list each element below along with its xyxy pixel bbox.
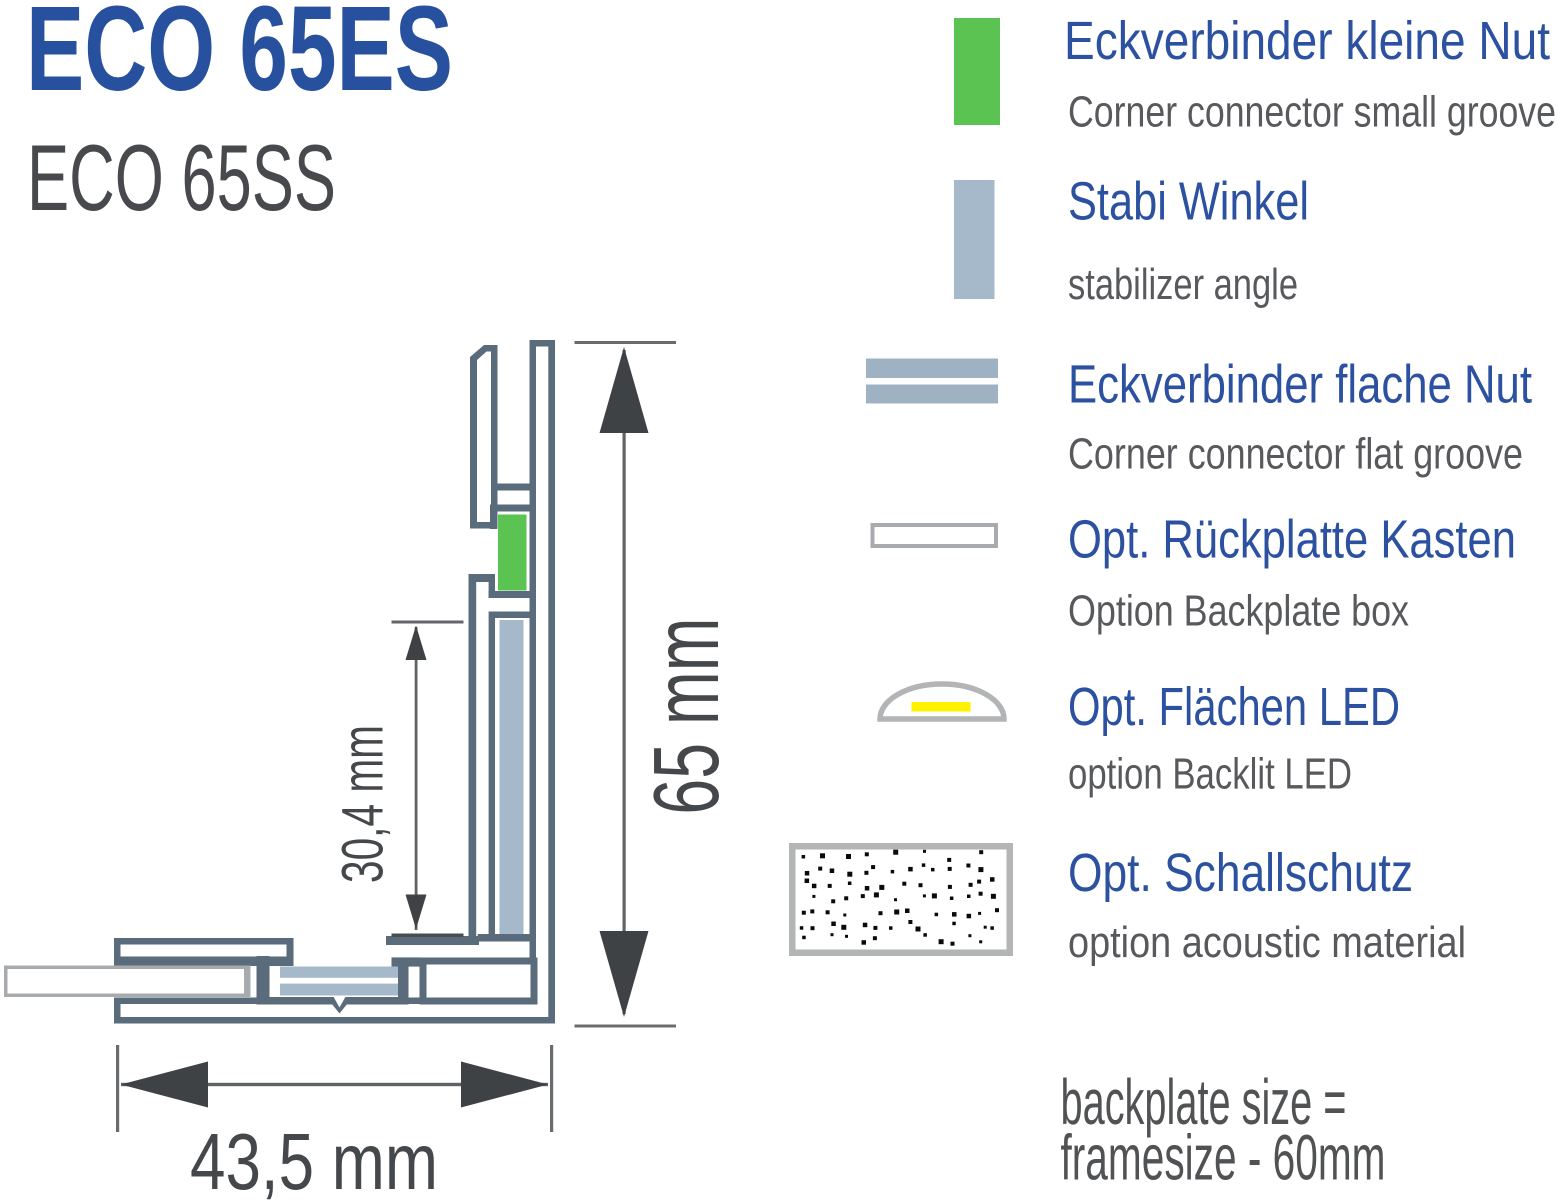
svg-text:option acoustic material: option acoustic material xyxy=(1068,918,1466,967)
svg-text:ECO 65ES: ECO 65ES xyxy=(26,0,453,116)
svg-text:43,5 mm: 43,5 mm xyxy=(190,1117,438,1200)
svg-text:Stabi Winkel: Stabi Winkel xyxy=(1068,172,1309,232)
svg-text:Option Backplate box: Option Backplate box xyxy=(1068,587,1409,636)
svg-text:30,4 mm: 30,4 mm xyxy=(331,725,396,883)
svg-text:ECO 65SS: ECO 65SS xyxy=(27,125,336,230)
svg-text:65 mm: 65 mm xyxy=(634,618,738,815)
svg-text:stabilizer angle: stabilizer angle xyxy=(1068,260,1298,309)
svg-text:Corner connector flat groove: Corner connector flat groove xyxy=(1068,430,1523,479)
svg-text:Opt. Flächen LED: Opt. Flächen LED xyxy=(1068,677,1400,737)
svg-text:Eckverbinder flache Nut: Eckverbinder flache Nut xyxy=(1068,355,1532,415)
svg-text:option Backlit LED: option Backlit LED xyxy=(1068,750,1352,799)
svg-text:Corner connector small groove: Corner connector small groove xyxy=(1068,88,1556,137)
svg-text:Eckverbinder kleine Nut: Eckverbinder kleine Nut xyxy=(1064,11,1550,71)
svg-text:Opt. Rückplatte Kasten: Opt. Rückplatte Kasten xyxy=(1068,509,1516,569)
svg-text:framesize - 60mm: framesize - 60mm xyxy=(1061,1121,1386,1193)
svg-text:Opt. Schallschutz: Opt. Schallschutz xyxy=(1068,843,1413,903)
